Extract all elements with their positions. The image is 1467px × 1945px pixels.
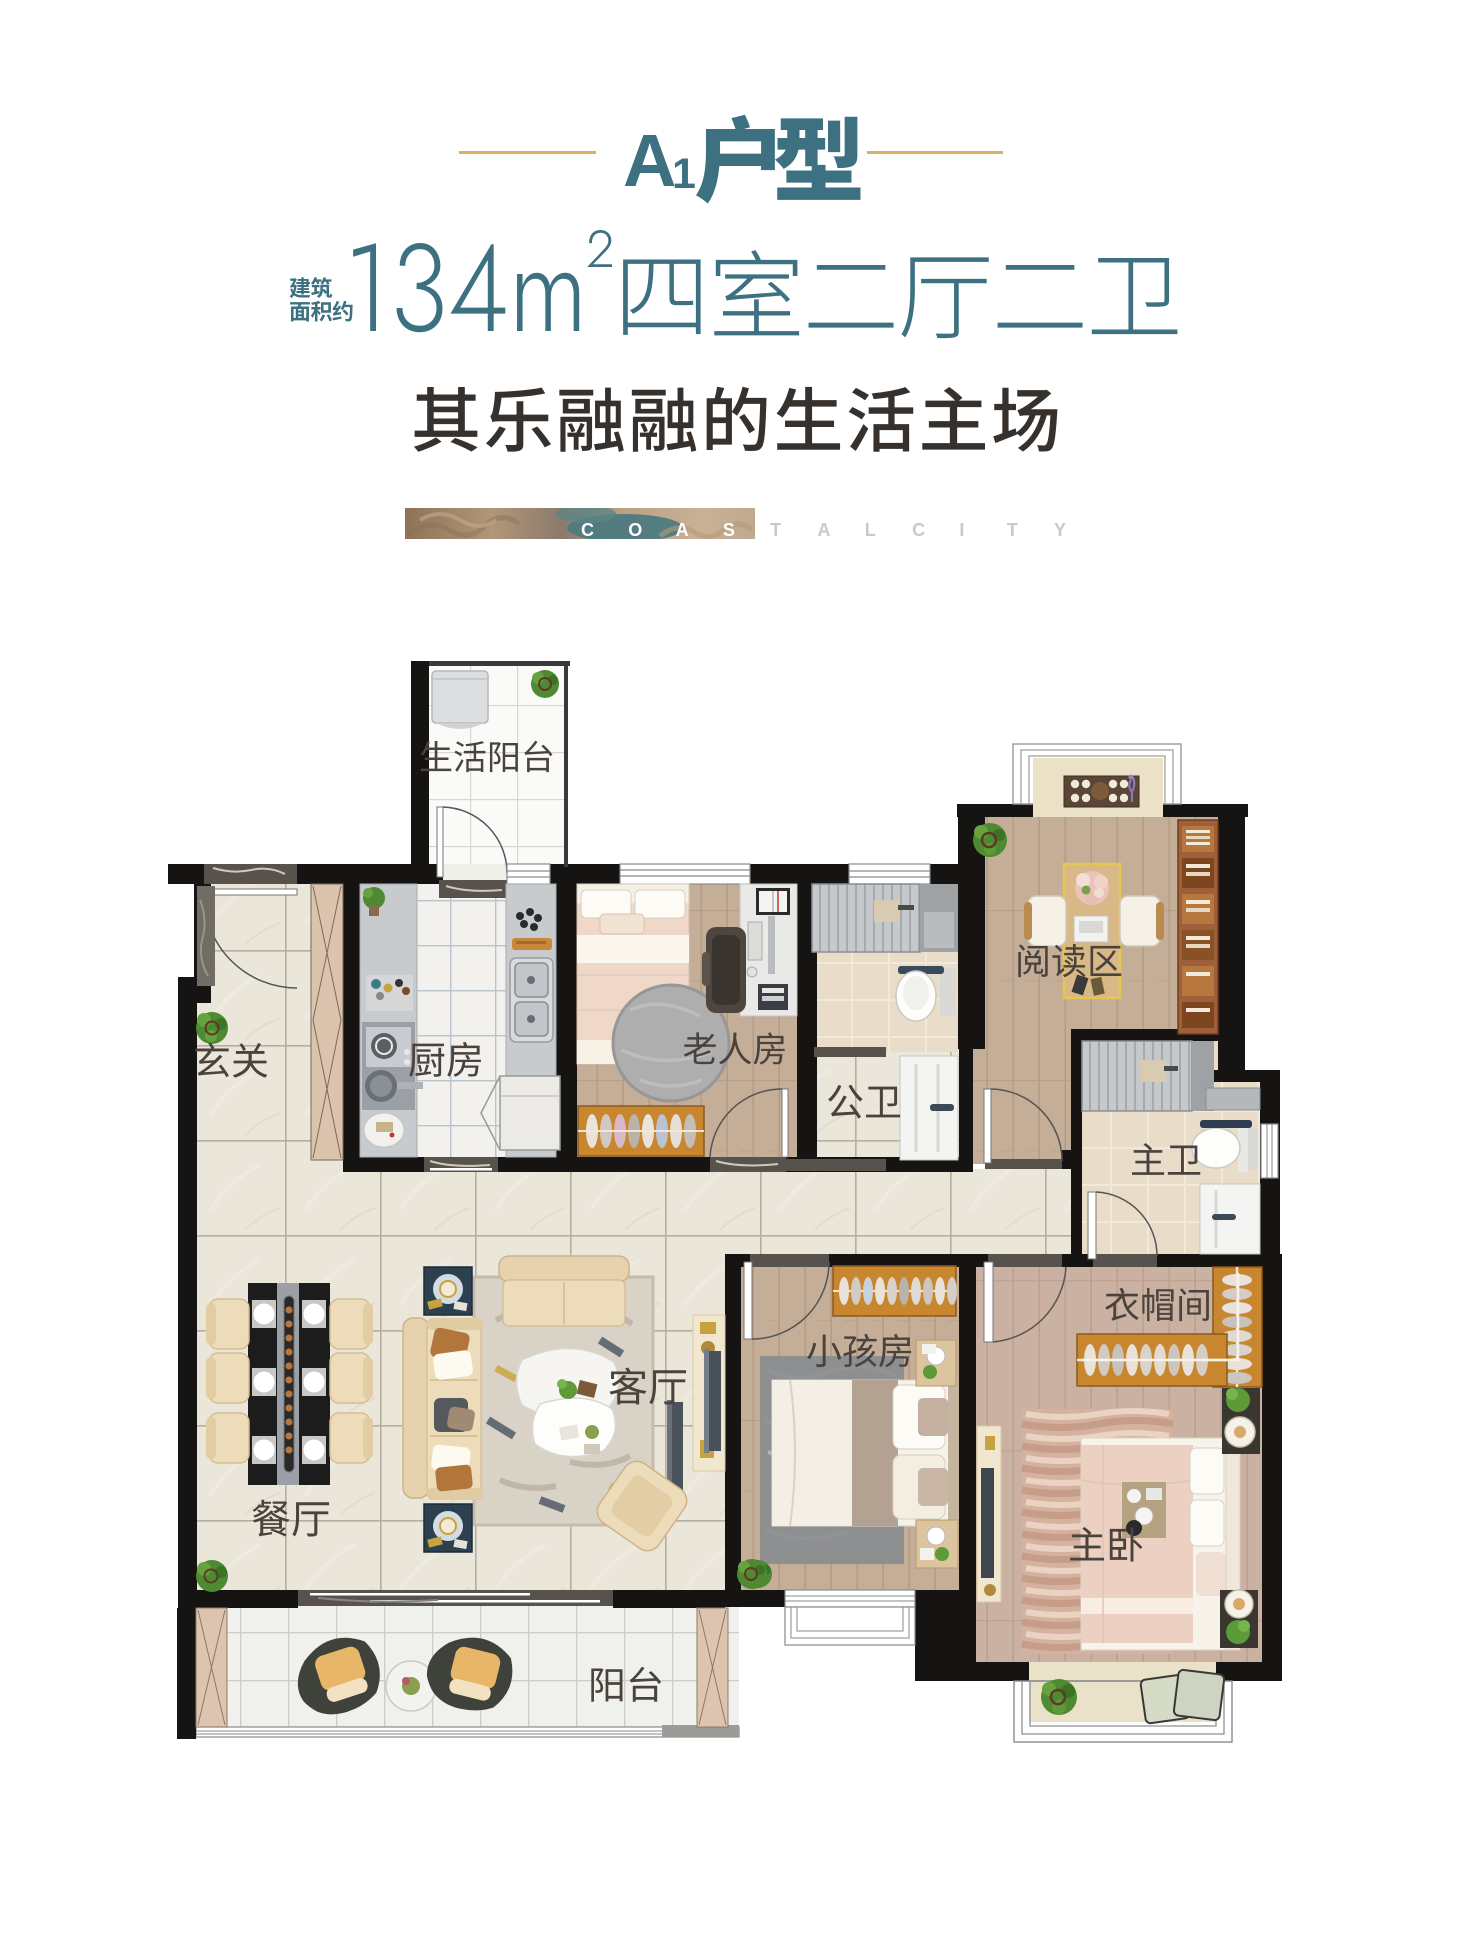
svg-text:O: O [628, 520, 642, 540]
svg-text:1: 1 [672, 150, 696, 198]
svg-text:C: C [581, 520, 594, 540]
svg-text:I: I [959, 520, 964, 540]
svg-text:T: T [1007, 520, 1018, 540]
svg-text:S: S [723, 520, 735, 540]
svg-text:A: A [676, 520, 689, 540]
svg-text:L: L [865, 520, 876, 540]
svg-text:C: C [912, 520, 925, 540]
svg-text:T: T [770, 520, 781, 540]
svg-text:A: A [623, 119, 676, 202]
svg-text:A: A [818, 520, 831, 540]
svg-text:Y: Y [1054, 520, 1066, 540]
